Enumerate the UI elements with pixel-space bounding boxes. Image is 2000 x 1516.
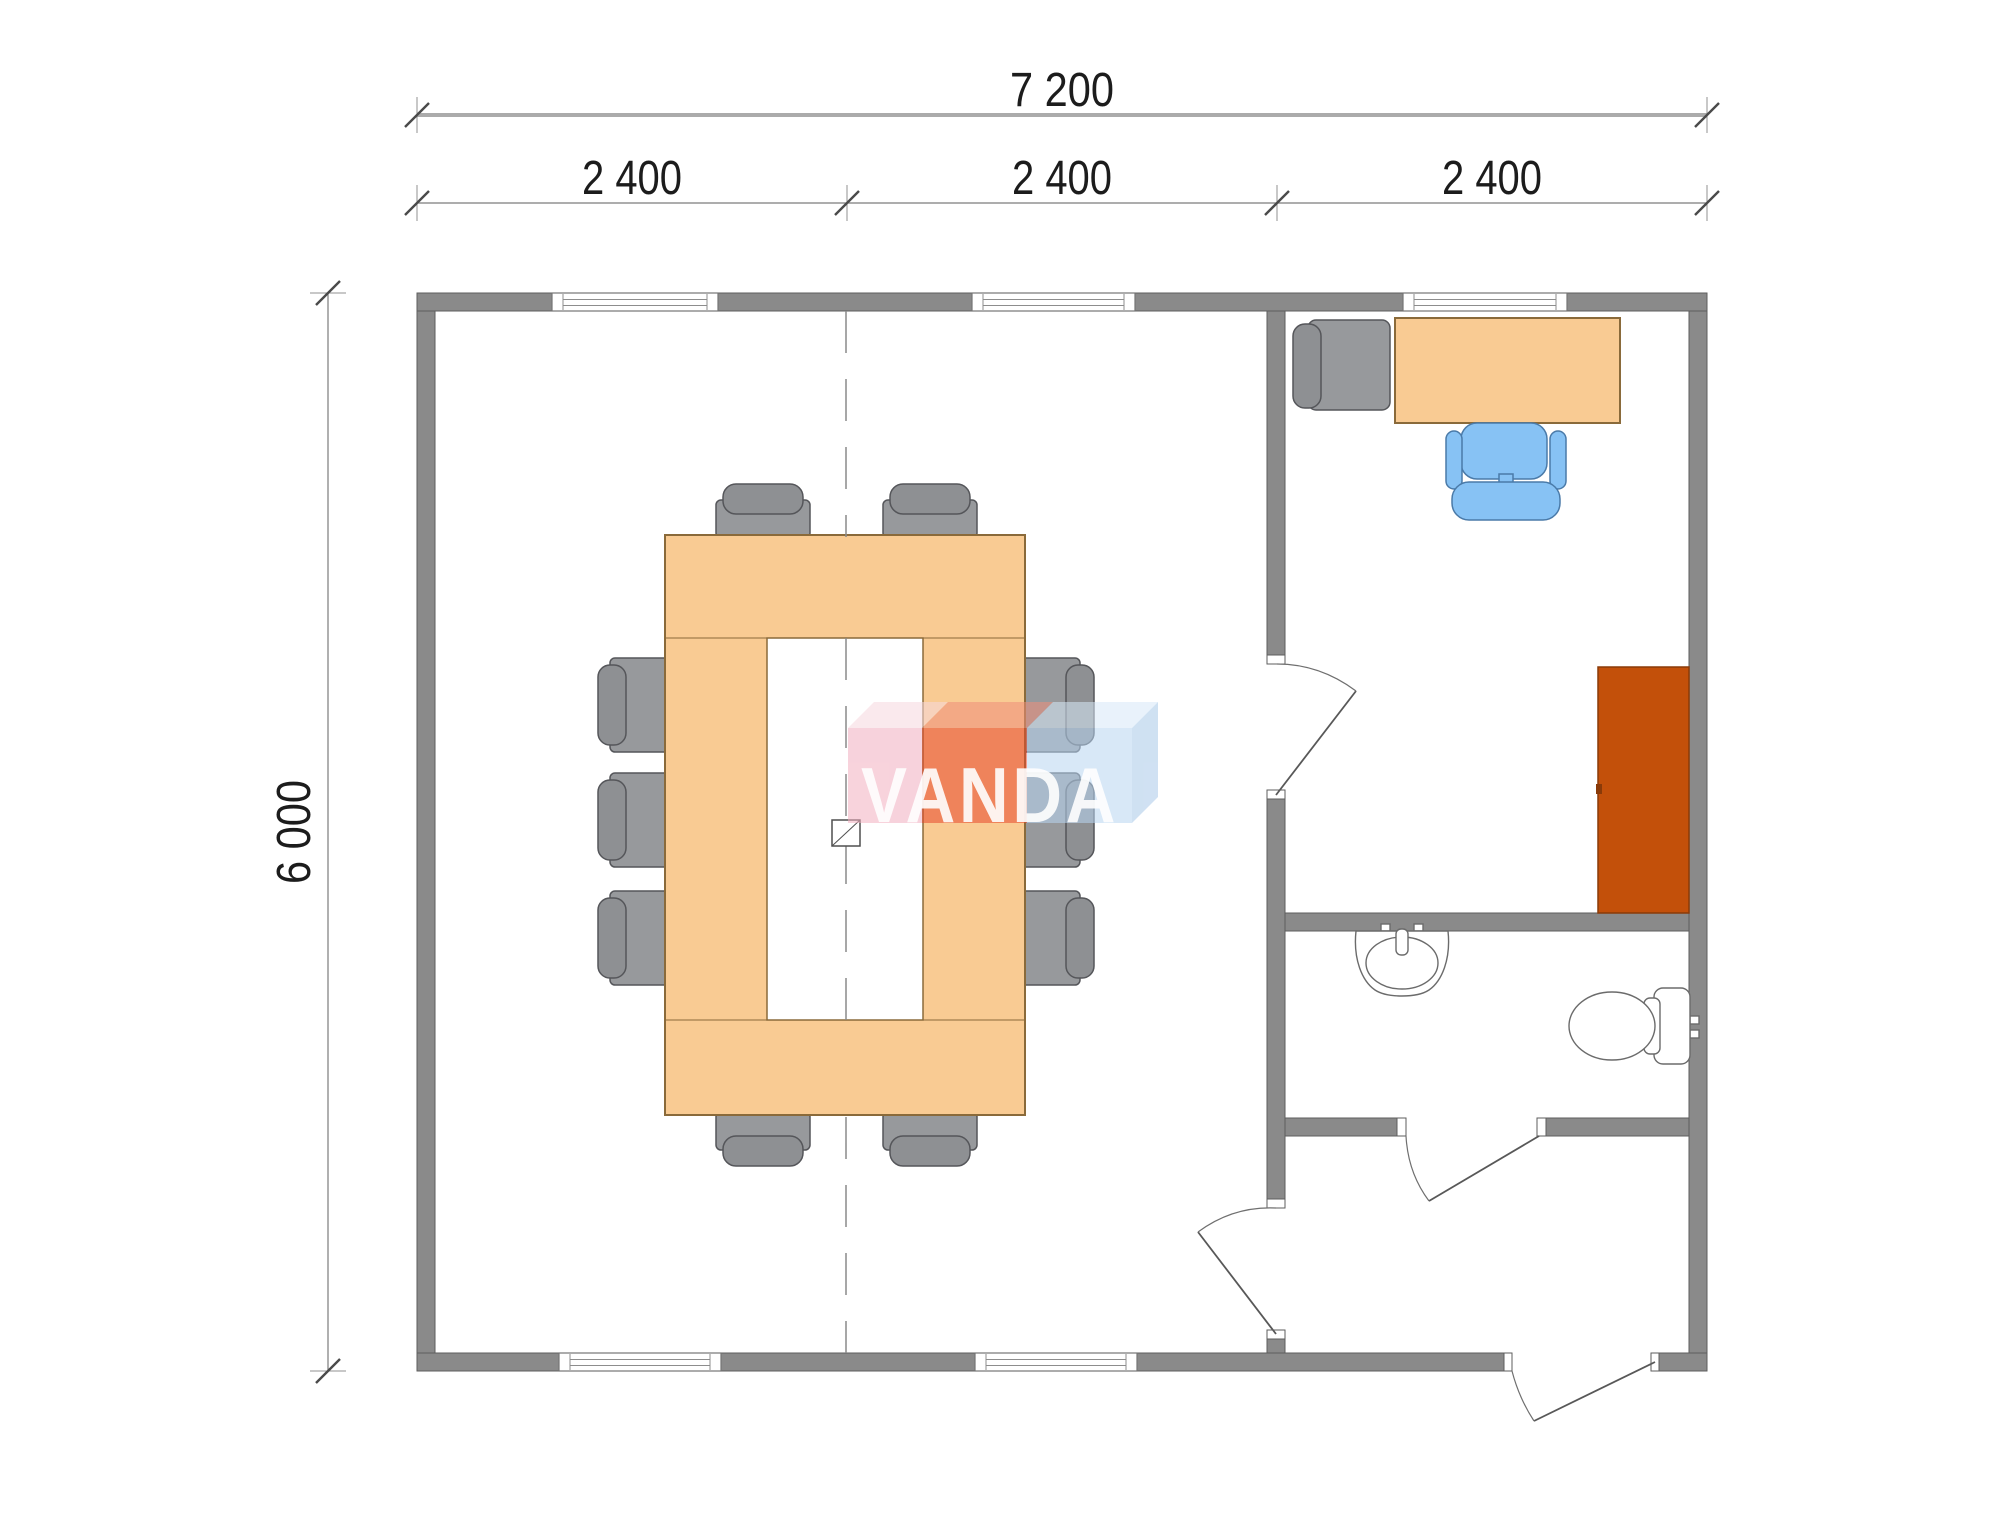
washbasin (1355, 924, 1448, 996)
dim-label-module-3: 2 400 (1442, 152, 1542, 205)
partition-office-bathroom (1285, 913, 1689, 931)
dim-label-module-1: 2 400 (582, 152, 682, 205)
wall-right (1689, 311, 1707, 1353)
conference-chair (716, 484, 810, 538)
conference-chair (598, 773, 670, 867)
door-office (1276, 664, 1356, 795)
wall-left (417, 311, 435, 1353)
entrance-opening (1512, 1352, 1651, 1372)
door-meeting-room (1198, 1208, 1276, 1334)
office-swivel-chair (1446, 423, 1566, 520)
partition-vertical-upper (1267, 311, 1285, 655)
dimension-modules: 2 400 2 400 2 400 (405, 152, 1719, 221)
floor-plan-page: 7 200 2 400 2 400 2 400 6 000 (0, 0, 2000, 1516)
dim-label-module-2: 2 400 (1012, 152, 1112, 205)
window-top-1 (552, 293, 718, 311)
conference-chair (883, 1112, 977, 1166)
column-marker (832, 820, 860, 846)
window-top-3 (1403, 293, 1567, 311)
office-desk (1395, 318, 1620, 423)
partition-bathroom-hall-left (1285, 1118, 1397, 1136)
conference-chair (716, 1112, 810, 1166)
floor-plan-drawing: 7 200 2 400 2 400 2 400 6 000 (0, 0, 2000, 1516)
vanda-logo-text: VANDA (861, 751, 1119, 839)
dim-label-7200: 7 200 (1010, 64, 1114, 117)
office-armchair (1293, 320, 1390, 410)
conference-chair (883, 484, 977, 538)
partition-bathroom-hall-right (1546, 1118, 1689, 1136)
window-bottom-2 (975, 1353, 1137, 1371)
dim-label-6000: 6 000 (268, 780, 321, 884)
door-bathroom (1406, 1136, 1539, 1201)
wardrobe (1596, 667, 1689, 913)
dimension-total-width: 7 200 (405, 64, 1719, 133)
window-top-2 (972, 293, 1135, 311)
conference-chair (598, 891, 670, 985)
window-bottom-1 (559, 1353, 721, 1371)
partition-vertical-stub (1267, 1339, 1285, 1353)
dimension-total-depth: 6 000 (268, 281, 346, 1383)
conference-chair (1020, 891, 1094, 985)
partition-vertical-middle (1267, 799, 1285, 1199)
toilet (1569, 988, 1699, 1064)
conference-chair (598, 658, 670, 752)
